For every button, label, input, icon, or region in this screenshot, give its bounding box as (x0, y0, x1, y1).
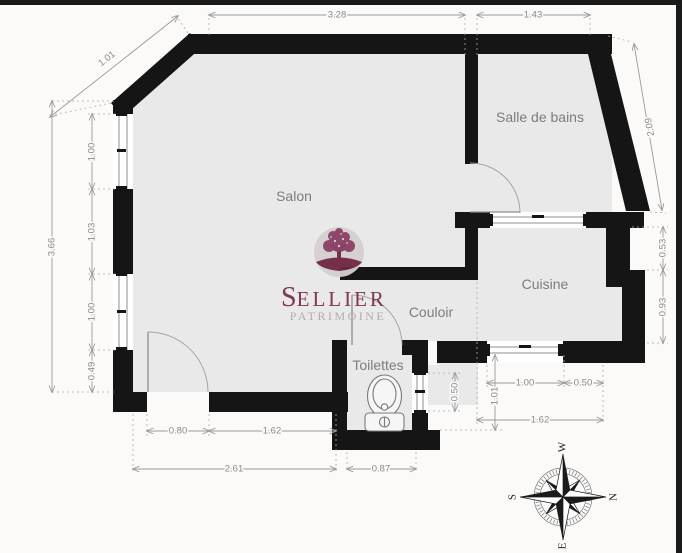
wall-bottom-salon (209, 392, 348, 412)
dim-label-left-seg4: 0.49 (87, 362, 98, 381)
dim-label-bottom-wall: 1.62 (263, 426, 282, 437)
dim-label-left-seg1: 1.00 (87, 143, 98, 162)
wall-wc-right-lower (412, 413, 428, 450)
window-left-lower (113, 272, 133, 351)
dim-label-kitchen-window: 1.00 (516, 378, 535, 389)
dim-label-bottom-door: 0.80 (169, 426, 188, 437)
wall-wc-top-stub (402, 340, 425, 355)
room-label-couloir: Couloir (409, 304, 454, 320)
compass-rose: W N E S (507, 441, 620, 549)
wall-couloir-stub (340, 267, 478, 280)
room-label-cuisine: Cuisine (522, 276, 569, 292)
dim-label-left-seg2: 1.03 (87, 223, 98, 242)
wall-left-mid (113, 189, 133, 274)
wall-kitchen-right-step (606, 270, 645, 287)
brand-logo-icon (314, 227, 364, 277)
floor-area (126, 46, 624, 435)
window-wc-right (412, 371, 428, 414)
wall-bottom-left (113, 392, 147, 412)
wall-salon-bathroom (465, 54, 478, 164)
room-label-toilettes: Toilettes (352, 357, 403, 373)
room-label-salle-de-bains: Salle de bains (496, 109, 584, 125)
wall-bathroom-bottom-left (455, 212, 490, 228)
window-bathroom-kitchen (488, 212, 588, 228)
wall-top (188, 34, 612, 54)
wall-kitchen-bottom-left (437, 341, 487, 363)
brand-subtitle: PATRIMOINE (290, 309, 387, 323)
dim-label-right-slant: 2.09 (643, 117, 657, 137)
compass-label-east: E (557, 542, 569, 549)
dim-label-bottom-total: 2.61 (225, 464, 244, 475)
dim-label-left-total: 3.66 (47, 238, 58, 257)
wall-kitchen-bottom-right (563, 341, 645, 363)
dim-label-top-main: 3.28 (328, 10, 347, 21)
window-kitchen-bottom (485, 341, 563, 363)
dim-label-bottom-wc: 0.87 (372, 464, 391, 475)
window-left-upper (113, 112, 133, 190)
room-label-salon: Salon (276, 188, 312, 204)
photo-border-top (0, 0, 682, 5)
dim-label-right-seg1: 0.53 (658, 239, 669, 258)
dim-label-kitchen-height: 1.01 (490, 387, 501, 406)
toilet-icon (365, 375, 404, 431)
dim-label-right-seg2: 0.93 (658, 298, 669, 317)
dim-label-top-right: 1.43 (524, 10, 543, 21)
wall-kitchen-right-lower (622, 287, 645, 345)
dim-label-left-seg3: 1.00 (87, 303, 98, 322)
photo-border-right (676, 0, 682, 553)
compass-label-south: S (507, 494, 519, 500)
dim-label-kitchen-right: 0.50 (574, 378, 593, 389)
dim-label-wc-window: 0.50 (450, 383, 461, 402)
dim-label-kitchen-total: 1.62 (531, 415, 550, 426)
floor-plan-page: 3.28 1.43 1.01 3.66 1.00 1.03 1.00 0.49 … (0, 0, 682, 553)
floor-plan-drawing: 3.28 1.43 1.01 3.66 1.00 1.03 1.00 0.49 … (0, 0, 682, 553)
wall-kitchen-right-upper (606, 212, 630, 270)
compass-label-west: W (557, 441, 569, 452)
compass-label-north: N (608, 493, 620, 501)
